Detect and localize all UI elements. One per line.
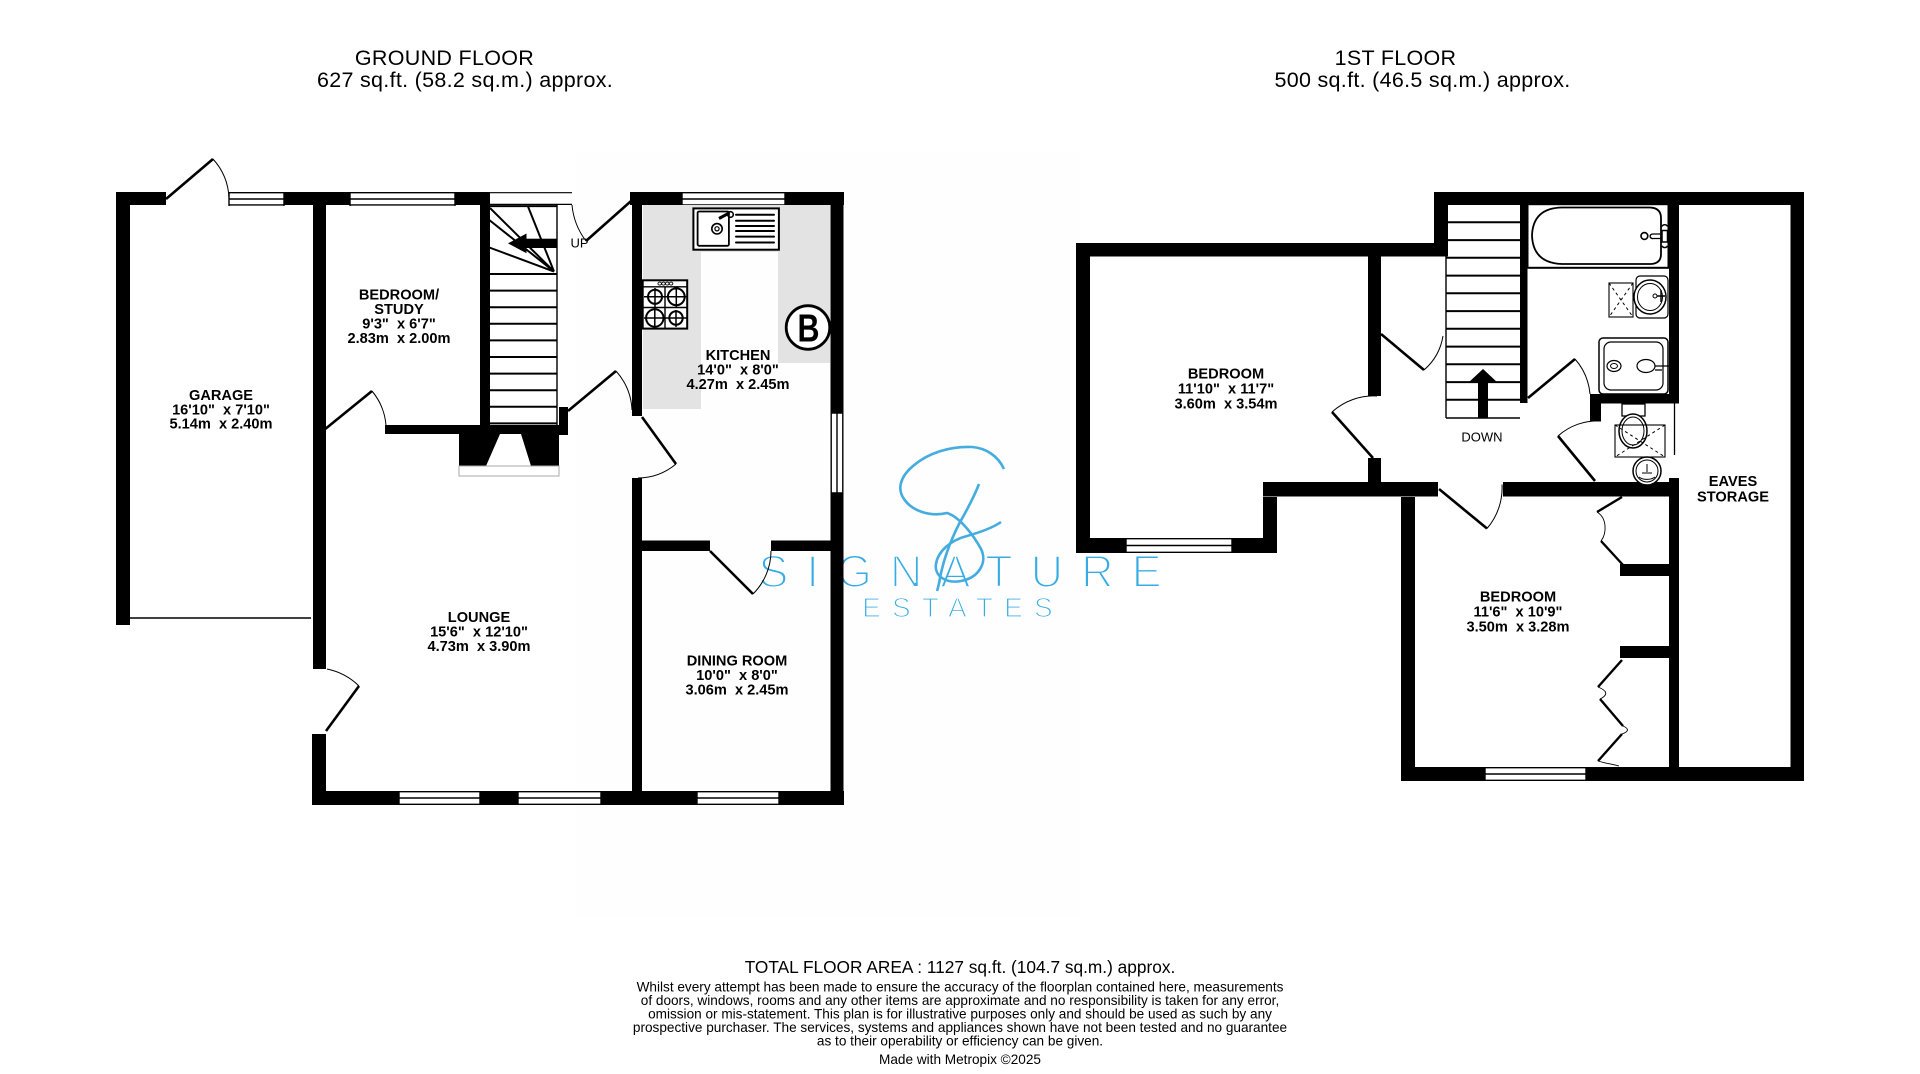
svg-text:EAVES: EAVES xyxy=(1709,474,1758,490)
svg-text:2.83m x 2.00m: 2.83m x 2.00m xyxy=(347,331,450,347)
svg-text:ESTATES: ESTATES xyxy=(862,592,1064,623)
svg-text:B: B xyxy=(798,307,820,350)
svg-text:500 sq.ft. (46.5 sq.m.) approx: 500 sq.ft. (46.5 sq.m.) approx. xyxy=(1274,68,1570,92)
svg-text:BEDROOM: BEDROOM xyxy=(1188,367,1264,383)
svg-text:as to their operability or eff: as to their operability or efficiency ca… xyxy=(817,1034,1103,1049)
svg-text:3.60m x 3.54m: 3.60m x 3.54m xyxy=(1174,397,1277,413)
svg-text:5.14m x 2.40m: 5.14m x 2.40m xyxy=(169,417,272,433)
svg-text:3.06m x 2.45m: 3.06m x 2.45m xyxy=(685,683,788,699)
svg-text:STORAGE: STORAGE xyxy=(1697,490,1769,506)
svg-text:1ST FLOOR: 1ST FLOOR xyxy=(1335,46,1457,70)
svg-text:3.50m x 3.28m: 3.50m x 3.28m xyxy=(1466,620,1569,636)
svg-text:UP: UP xyxy=(571,236,589,251)
svg-text:TOTAL FLOOR AREA : 1127 sq.ft.: TOTAL FLOOR AREA : 1127 sq.ft. (104.7 sq… xyxy=(745,957,1176,977)
svg-text:4.73m x 3.90m: 4.73m x 3.90m xyxy=(427,639,530,655)
svg-text:GROUND FLOOR: GROUND FLOOR xyxy=(355,46,534,70)
svg-text:11'10" x 11'7": 11'10" x 11'7" xyxy=(1178,382,1274,398)
svg-text:DOWN: DOWN xyxy=(1461,430,1502,445)
svg-text:BEDROOM: BEDROOM xyxy=(1480,590,1556,606)
svg-text:Made with Metropix ©2025: Made with Metropix ©2025 xyxy=(879,1052,1041,1067)
svg-text:627 sq.ft. (58.2 sq.m.) approx: 627 sq.ft. (58.2 sq.m.) approx. xyxy=(317,68,613,92)
svg-text:11'6" x 10'9": 11'6" x 10'9" xyxy=(1474,605,1563,621)
svg-text:SIGNATURE: SIGNATURE xyxy=(758,546,1179,597)
svg-text:4.27m x 2.45m: 4.27m x 2.45m xyxy=(686,377,789,393)
